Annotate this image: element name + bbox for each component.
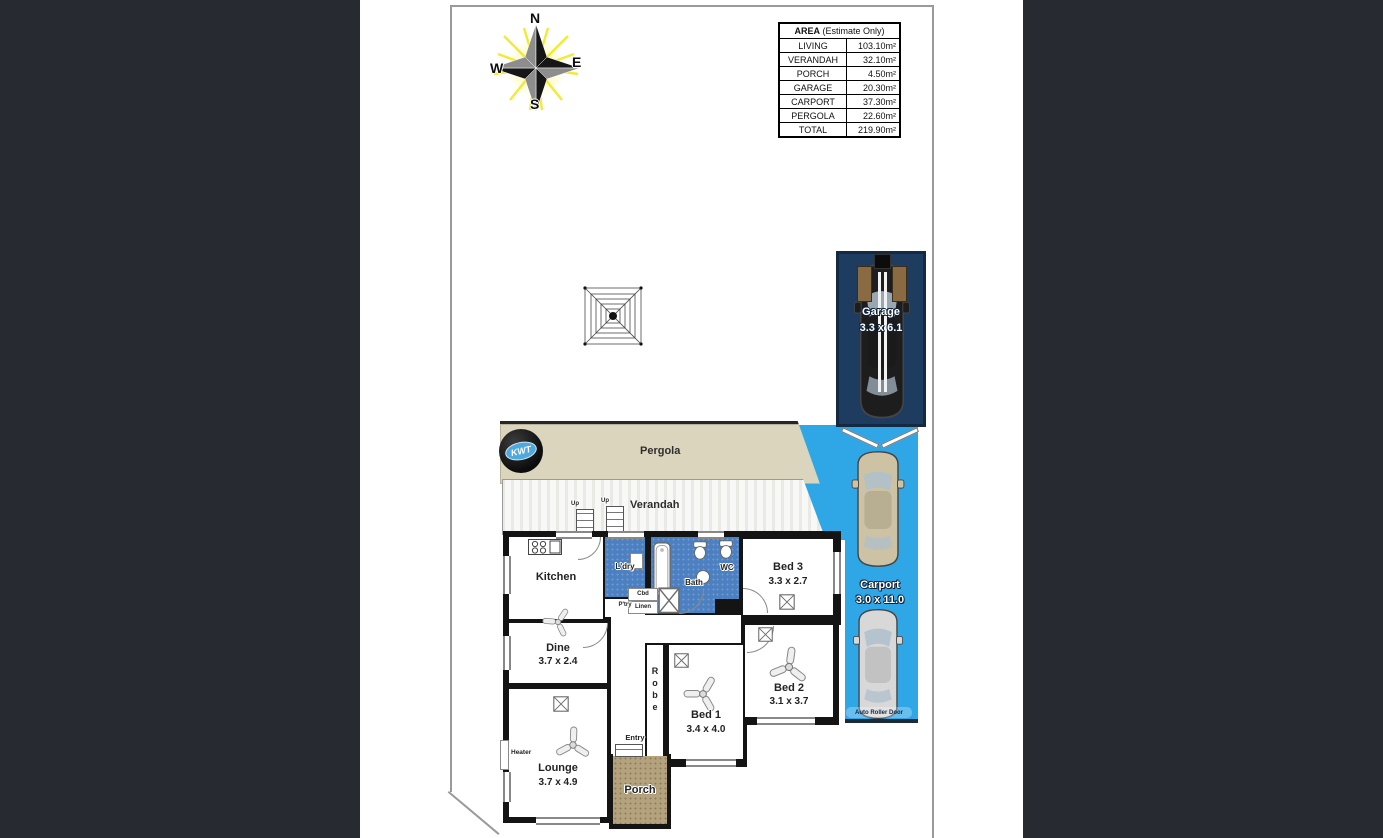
- xbox-icon: [553, 696, 569, 712]
- auto-roller-door-label: Auto Roller Door: [846, 707, 912, 718]
- boundary-top: [450, 5, 934, 7]
- verandah-label: Verandah: [630, 499, 680, 511]
- area-table-title: AREA: [794, 26, 820, 36]
- garage-label: Garage: [839, 306, 923, 318]
- ceiling-fan-icon: [550, 722, 595, 767]
- compass-south-label: S: [530, 96, 539, 112]
- area-table: AREA (Estimate Only) LIVING103.10m² VERA…: [778, 22, 901, 138]
- heater-label: Heater: [511, 749, 531, 757]
- compass-north-label: N: [530, 10, 540, 26]
- carport-label: Carport: [845, 579, 915, 591]
- bath-label: Bath: [672, 578, 716, 588]
- bed2-dims: 3.1 x 3.7: [745, 696, 833, 709]
- lounge-label: Lounge: [509, 762, 607, 776]
- row-value: 4.50m²: [847, 67, 900, 81]
- linen-label: Linen: [628, 604, 658, 612]
- row-label: VERANDAH: [779, 53, 847, 67]
- row-label: GARAGE: [779, 81, 847, 95]
- window: [536, 817, 600, 825]
- compass-west-label: W: [490, 60, 503, 76]
- bed1-dims: 3.4 x 4.0: [669, 724, 743, 737]
- bed2-label: Bed 2: [745, 682, 833, 696]
- row-value: 20.30m²: [847, 81, 900, 95]
- stove-icon: [528, 539, 562, 555]
- verandah-steps-2: [606, 506, 624, 534]
- compass-east-label: E: [572, 54, 581, 70]
- toilet-icon: [692, 541, 708, 560]
- hallway: [641, 615, 741, 643]
- row-label: PERGOLA: [779, 109, 847, 123]
- cupboard-label: Cbd: [628, 591, 658, 599]
- xbox-icon: [674, 653, 689, 668]
- window: [608, 531, 644, 539]
- row-label: TOTAL: [779, 123, 847, 138]
- bed3-label: Bed 3: [743, 561, 833, 575]
- up-label-1: Up: [571, 501, 579, 509]
- laundry-label: L'dry: [605, 562, 645, 572]
- entry-steps: [615, 744, 643, 757]
- bed1-label: Bed 1: [669, 709, 743, 723]
- agency-logo-oval: KWT: [505, 440, 538, 462]
- row-label: PORCH: [779, 67, 847, 81]
- garage-dims: 3.3 x 6.1: [839, 322, 923, 334]
- bed3-dims: 3.3 x 2.7: [743, 576, 833, 589]
- window: [698, 531, 724, 539]
- table-row: GARAGE20.30m²: [779, 81, 900, 95]
- heater-unit: [500, 740, 509, 770]
- area-table-subtitle: (Estimate Only): [820, 26, 885, 36]
- porch-wall: [609, 824, 671, 829]
- hatch-xbox-icon: [658, 587, 680, 614]
- table-row: PERGOLA22.60m²: [779, 109, 900, 123]
- clothesline-icon: [583, 286, 643, 346]
- row-value: 22.60m²: [847, 109, 900, 123]
- window: [686, 759, 736, 767]
- compass-rose-icon: N E S W: [484, 14, 588, 114]
- window: [833, 552, 841, 594]
- kitchen-label: Kitchen: [509, 571, 603, 585]
- boundary-left: [450, 5, 452, 792]
- floorplan-page: N E S W AREA (Estimate Only) LIVING103.1…: [0, 0, 1383, 838]
- robe-label: Robe: [650, 666, 660, 714]
- row-value: 219.90m²: [847, 123, 900, 138]
- right-dark-bar: [1023, 0, 1383, 838]
- row-value: 32.10m²: [847, 53, 900, 67]
- table-row: PORCH4.50m²: [779, 67, 900, 81]
- row-value: 37.30m²: [847, 95, 900, 109]
- toilet-icon: [718, 540, 734, 559]
- carport-bottom-edge: [845, 719, 918, 723]
- agency-logo: KWT: [499, 429, 543, 473]
- porch-label: Porch: [613, 784, 667, 798]
- carport-dims: 3.0 x 11.0: [845, 594, 915, 606]
- row-value: 103.10m²: [847, 39, 900, 53]
- car-tan: [847, 450, 909, 568]
- garage-shelf-right: [892, 266, 907, 302]
- garage-shelf-left: [857, 266, 872, 302]
- pergola-label: Pergola: [640, 445, 680, 457]
- agency-logo-text: KWT: [510, 444, 532, 458]
- table-row: TOTAL219.90m²: [779, 123, 900, 138]
- garage-top-fixture: [874, 254, 891, 269]
- xbox-icon: [779, 594, 795, 610]
- window: [757, 717, 815, 725]
- garage-area: Garage 3.3 x 6.1: [836, 251, 926, 427]
- wc-label: WC: [715, 563, 739, 573]
- entry-label: Entry: [618, 733, 652, 742]
- lounge-dims: 3.7 x 4.9: [509, 777, 607, 790]
- row-label: CARPORT: [779, 95, 847, 109]
- dine-label: Dine: [509, 642, 607, 656]
- boundary-right: [932, 5, 934, 838]
- up-label-2: Up: [601, 498, 609, 506]
- porch-wall: [667, 754, 671, 828]
- dine-dims: 3.7 x 2.4: [509, 656, 607, 669]
- table-row: CARPORT37.30m²: [779, 95, 900, 109]
- table-row: VERANDAH32.10m²: [779, 53, 900, 67]
- left-dark-bar: [0, 0, 360, 838]
- xbox-icon: [758, 627, 773, 642]
- row-label: LIVING: [779, 39, 847, 53]
- car-silver: [847, 608, 909, 720]
- table-row: LIVING103.10m²: [779, 39, 900, 53]
